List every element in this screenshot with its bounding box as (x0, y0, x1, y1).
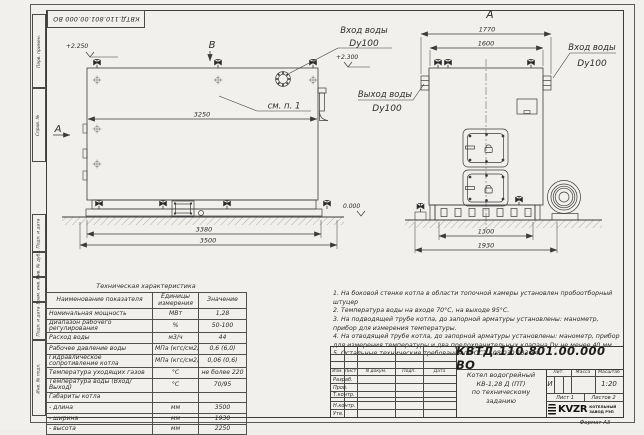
view-b-label: В (209, 40, 216, 51)
dim-3500: 3500 (200, 237, 217, 245)
spec-row: Габариты котла (47, 392, 247, 403)
role-prov: Пров. (333, 385, 348, 391)
spec-header-row: Наименование показателя Единицы измерени… (47, 293, 247, 309)
sheet-number: Лист 1 (556, 395, 574, 401)
spec-row: Номинальная мощностьМВт1,28 (47, 309, 247, 320)
blower-fan (548, 181, 581, 221)
spec-row: - длинамм3500 (47, 403, 247, 414)
elevation-2300: +2.300 (336, 54, 358, 61)
product-name-line3: по техническому заданию (456, 388, 546, 405)
center-mark-icon (93, 125, 102, 134)
valve-icon (224, 200, 231, 209)
door-latch (466, 146, 475, 149)
inlet-top-label: Вход воды (340, 26, 388, 36)
spec-table: Наименование показателя Единицы измерени… (46, 292, 247, 435)
title-block: Изм. Лист N докум. Подп. Дата Разраб. Пр… (330, 346, 624, 418)
side-left-tab (83, 171, 87, 180)
door-handle-icon (486, 185, 491, 188)
valve-icon (324, 200, 331, 209)
spec-row: Расход водым3/ч44 (47, 333, 247, 344)
center-mark-icon (309, 76, 318, 85)
center-mark-icon (214, 76, 223, 85)
role-razrab: Разраб. (333, 377, 353, 383)
role-nkontr: Н.контр. (333, 403, 355, 409)
valve-icon (417, 203, 424, 212)
rev-col-ndokum: N докум. (366, 369, 387, 374)
front-panel-box (517, 99, 537, 114)
front-ground-hatch (405, 221, 602, 229)
side-small-port (199, 211, 204, 216)
valve-icon (528, 59, 535, 68)
door-latch (466, 187, 475, 190)
section-a-label: А (54, 124, 62, 135)
product-name-line1: Котел водогрейный (456, 371, 546, 380)
rev-col-data: Дата (434, 369, 446, 374)
doc-number: КВТД.110.801.00.000 ВО (456, 347, 623, 369)
front-view-label: А (485, 9, 493, 21)
valve-icon (435, 59, 442, 68)
spec-row: Температура уходящих газов°Сне более 220 (47, 368, 247, 379)
inlet-top-dn-label: Dy100 (349, 39, 379, 49)
side-inlet-flange-port (276, 72, 291, 87)
dim-1770: 1770 (479, 26, 496, 34)
center-mark-icon (93, 76, 102, 85)
front-panel-slot (524, 111, 530, 114)
side-left-tab (83, 149, 87, 158)
front-lower-door (463, 170, 508, 206)
valve-icon (160, 200, 167, 209)
lit-header: Лит. (553, 370, 564, 375)
scale-header: Масштаб (598, 370, 620, 375)
elevation-mark-icon (344, 62, 352, 67)
valve-icon (94, 59, 101, 68)
elevation-mark-icon (86, 52, 94, 57)
manufacturer-logo: KVZR КОТЕЛЬНЫЙ ЗАВОД РЭП (548, 403, 622, 416)
spec-header-units: Единицы измерения (153, 293, 199, 309)
side-left-tab (83, 124, 87, 133)
dim-1300: 1300 (478, 228, 495, 236)
spec-row: Рабочее давление водыМПа (кгс/см2)0,6 (6… (47, 343, 247, 354)
spec-row: Диапазон рабочего регулирования%50-100 (47, 319, 247, 333)
inlet-right-dn-label: Dy100 (577, 59, 607, 69)
boiler-side-view (53, 48, 392, 249)
valve-icon (445, 59, 452, 68)
outlet-dn-label: Dy100 (372, 104, 402, 114)
inlet-right-label: Вход воды (568, 43, 616, 53)
lit-value: И (547, 380, 552, 388)
elevation-mark-icon (357, 211, 365, 216)
door-handle-icon (486, 145, 491, 148)
note-line: 2. Температура воды на входе 70°С, на вы… (333, 307, 624, 316)
spec-header-value: Значение (199, 293, 247, 309)
rev-col-list: Лист (345, 369, 356, 374)
elevation-0000: 0.000 (343, 203, 360, 210)
dim-3250: 3250 (194, 111, 211, 119)
dim-3380: 3380 (196, 226, 213, 234)
front-skid (430, 205, 540, 220)
side-skid (92, 200, 316, 209)
valve-icon (96, 200, 103, 209)
role-tkontr: Т.контр. (333, 392, 355, 398)
side-base-plate (86, 209, 322, 216)
sheet-background: КВТД.110.801.00.000 ВО Перв. примен. Спр… (0, 0, 644, 430)
rev-col-izm: Изм. (332, 369, 343, 374)
role-utv: Утв. (333, 411, 344, 417)
side-outlet-nozzle (318, 88, 328, 121)
product-name-line2: КВ-1,28 Д (ПТ) (456, 380, 546, 389)
note-line: 3. На подводящей трубе котла, до запорно… (333, 316, 624, 333)
spec-table-title: Техническая характеристика (46, 282, 246, 290)
boiler-front-view (344, 34, 616, 253)
sheets-total: Листов 2 (591, 395, 615, 401)
inlet-leader (289, 48, 338, 74)
valve-icon (516, 196, 523, 205)
see-item-note: см. п. 1 (268, 102, 301, 112)
center-mark-icon (93, 160, 102, 169)
valve-icon (215, 59, 222, 68)
side-ground-hatch (62, 218, 344, 226)
front-valve-pedestal (415, 212, 426, 220)
kvzr-logo-caption: КОТЕЛЬНЫЙ ЗАВОД РЭП (589, 405, 616, 414)
drawing-sheet-page: { "colors": {"paper":"#f1f0ec","line":"#… (0, 0, 644, 430)
spec-row: Гидравлическое сопротивление котлаМПа (к… (47, 354, 247, 368)
front-upper-door (463, 129, 508, 167)
note-line: 1. На боковой стенке котла в области топ… (333, 290, 624, 307)
front-right-flange (543, 76, 551, 90)
spec-row: - ширинамм1930 (47, 413, 247, 424)
spec-row: Температура воды (Вход/Выход)°С70/95 (47, 378, 247, 392)
product-name: Котел водогрейный КВ-1,28 Д (ПТ) по техн… (456, 371, 546, 405)
side-boiler-body (87, 68, 318, 200)
spec-row: - высотамм2250 (47, 424, 247, 435)
kvzr-logo-text: KVZR (558, 404, 587, 415)
kvzr-logo-icon (548, 404, 556, 415)
spec-header-name: Наименование показателя (47, 293, 153, 309)
mass-header: Масса (576, 370, 591, 375)
side-bottom-flange-box (172, 201, 194, 216)
outlet-label: Выход воды (358, 90, 412, 100)
dim-1930: 1930 (478, 242, 495, 250)
front-left-flange (421, 76, 429, 90)
dim-1600: 1600 (478, 40, 495, 48)
rev-col-podp: Подп. (402, 369, 416, 374)
technical-characteristics: Техническая характеристика Наименование … (46, 282, 246, 435)
elevation-2250: +2.250 (66, 43, 88, 50)
scale-value: 1:20 (601, 380, 617, 388)
format-note: Формат А3 (560, 420, 630, 426)
